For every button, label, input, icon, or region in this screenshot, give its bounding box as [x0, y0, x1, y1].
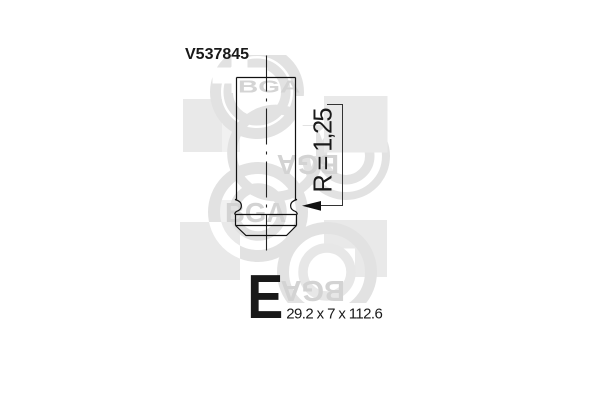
svg-text:BGA: BGA: [238, 77, 300, 96]
svg-text:V537845: V537845: [185, 46, 249, 63]
svg-text:R = 1,25: R = 1,25: [309, 108, 337, 193]
svg-text:29.2 x 7 x 112.6: 29.2 x 7 x 112.6: [286, 305, 383, 322]
svg-text:E: E: [247, 263, 283, 332]
svg-text:BGA: BGA: [225, 197, 286, 228]
svg-text:BGA: BGA: [281, 274, 346, 306]
